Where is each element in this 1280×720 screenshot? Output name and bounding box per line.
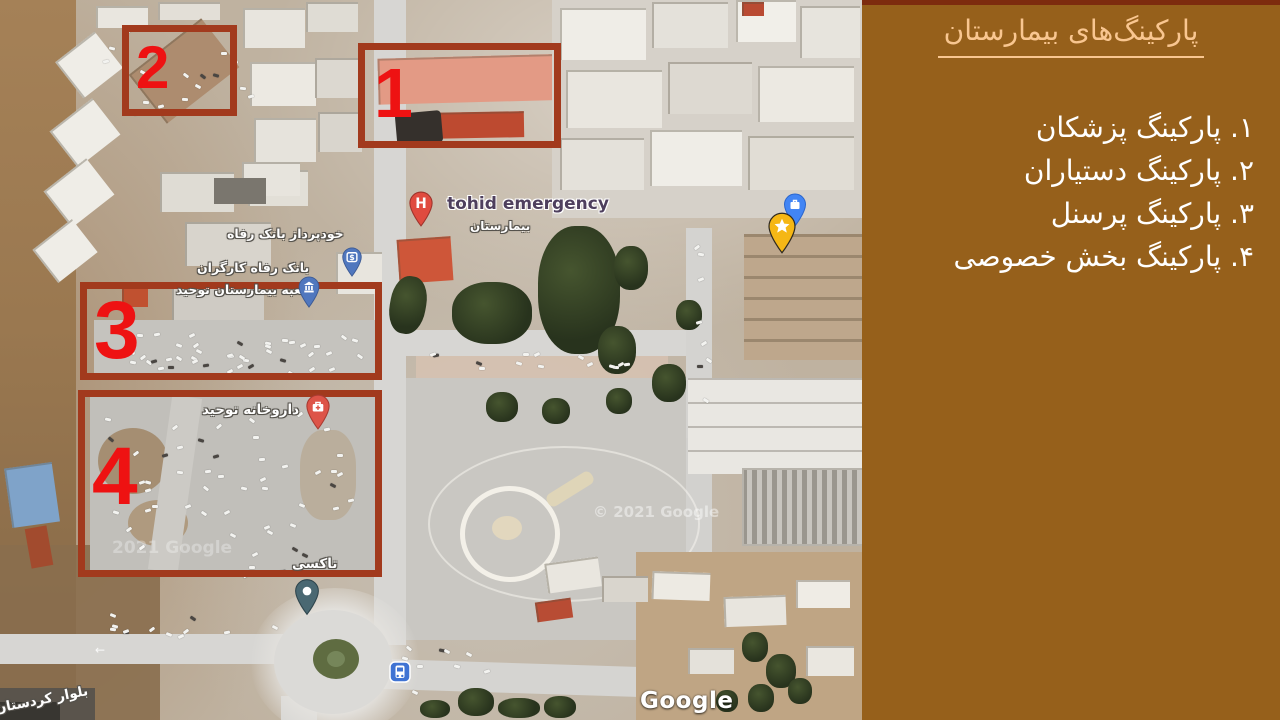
building (806, 646, 854, 676)
building (688, 648, 734, 674)
building (748, 136, 854, 190)
building (602, 576, 648, 602)
label-hospital-fa: بیمارستان (470, 219, 530, 233)
annotation-number-1: 1 (374, 58, 413, 128)
building (243, 8, 305, 48)
tree (544, 696, 576, 718)
label-bank-line1: بانک رفاه کارگران (197, 260, 309, 275)
rows-building (688, 378, 862, 474)
tree (486, 392, 518, 422)
car-dot (443, 649, 450, 654)
slide: ← © 2021 Google 2021 Google Google 1 2 3… (0, 0, 1280, 720)
parking-list-item-4: ۴. پارکینگ بخش خصوصی (953, 235, 1254, 278)
tree (458, 688, 494, 716)
building (652, 2, 728, 48)
building (566, 70, 662, 128)
ring-center (492, 516, 522, 540)
blue-roof-building (4, 462, 60, 528)
label-taxi: تاکسی (292, 556, 337, 572)
sidebar-top-strip (862, 0, 1280, 5)
roundabout-center (327, 651, 345, 667)
annotation-number-2: 2 (136, 38, 169, 98)
parking-list: ۱. پارکینگ پزشکان ۲. پارکینگ دستیاران ۳.… (953, 106, 1254, 278)
copyright-watermark-faint: 2021 Google (112, 538, 232, 558)
road-arrow: ← (95, 643, 105, 657)
red-roof-small (742, 2, 764, 16)
pharmacy-pin (305, 394, 331, 434)
parking-list-item-2: ۲. پارکینگ دستیاران (953, 149, 1254, 192)
tree (788, 678, 812, 704)
satellite-map: ← © 2021 Google 2021 Google Google 1 2 3… (0, 0, 862, 720)
bus-stop-icon (389, 661, 411, 687)
tree (742, 632, 768, 662)
building (652, 571, 711, 601)
copyright-watermark: © 2021 Google (593, 503, 719, 521)
car-dot (479, 367, 485, 370)
svg-text:H: H (415, 196, 427, 212)
label-tohid-emergency: tohid emergency (447, 194, 609, 214)
sidebar: پارکینگ‌های بیمارستان ۱. پارکینگ پزشکان … (862, 0, 1280, 720)
building (250, 62, 316, 106)
tree (606, 388, 632, 414)
building (158, 2, 220, 20)
google-logo: Google (640, 688, 733, 714)
striped-roof-building (742, 468, 862, 546)
tree (748, 684, 774, 712)
label-pharmacy: داروخانه توحید (202, 402, 299, 418)
car-dot (697, 365, 703, 368)
tree (542, 398, 570, 424)
building (650, 130, 742, 186)
label-bank-line2: شعبه بیمارستان توحید (176, 282, 313, 297)
atm-pin: $ (341, 247, 363, 281)
sidebar-title: پارکینگ‌های بیمارستان (938, 14, 1205, 58)
tree (452, 282, 532, 344)
containers-block (744, 234, 862, 360)
building (315, 58, 363, 98)
car-dot (109, 627, 115, 631)
building (800, 6, 860, 58)
taxi-pin (294, 578, 320, 620)
tree (498, 698, 540, 718)
car-dot (240, 87, 246, 91)
road-bottom-left (0, 634, 290, 664)
svg-text:$: $ (349, 253, 355, 262)
hospital-pin: H (408, 191, 434, 231)
tree (420, 700, 450, 718)
building (560, 8, 646, 60)
car-dot (417, 664, 423, 667)
car-dot (189, 616, 196, 622)
annotation-number-3: 3 (94, 290, 140, 372)
car-dot (523, 353, 529, 356)
parking-list-item-3: ۳. پارکینگ پرسنل (953, 192, 1254, 235)
star-pin (766, 212, 798, 258)
tree (614, 246, 648, 290)
car-dot (466, 652, 473, 658)
car-dot (624, 362, 630, 366)
sidebar-title-wrap: پارکینگ‌های بیمارستان (862, 14, 1280, 58)
parking-list-item-1: ۱. پارکینگ پزشکان (953, 106, 1254, 149)
building (668, 62, 752, 114)
building (254, 118, 316, 162)
annotation-number-4: 4 (92, 436, 138, 518)
dark-patch (214, 178, 266, 204)
car-dot (412, 690, 419, 695)
building (723, 595, 786, 627)
building (796, 580, 850, 608)
building (318, 112, 362, 152)
building (306, 2, 358, 32)
tree (652, 364, 686, 402)
label-atm: خودپرداز بانک رفاه (227, 226, 344, 241)
tree (676, 300, 702, 330)
building (758, 66, 854, 122)
building (560, 138, 644, 190)
bank-pin (297, 276, 321, 312)
road-center-horizontal (392, 330, 692, 356)
